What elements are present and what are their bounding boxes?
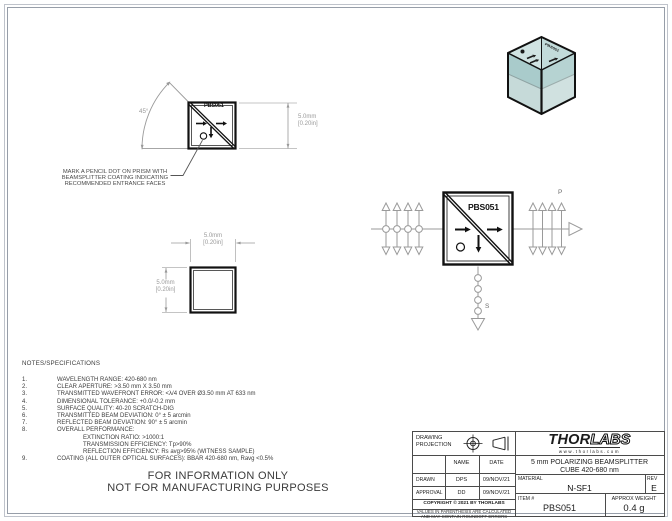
engineering-drawing-page: { "views": { "marking_view": { "cube_lab… [0,0,672,521]
note-item: 7.REFLECTED BEAM DEVIATION: 90° ± 5 arcm… [22,420,352,427]
cone-symbol-icon [493,437,508,451]
p-polarization-label: P [558,189,562,196]
approx-weight-label: APPROX WEIGHT [605,496,664,502]
note-item: 3.TRANSMITTED WAVEFRONT ERROR: <λ/4 OVER… [22,391,352,398]
marking-view-height-dim: 5.0mm [0.20in] [298,114,336,129]
beam-diagram-linework [371,192,582,330]
rev-label: REV [647,476,657,482]
logo-labs: LABS [590,432,630,448]
copyright-notice: COPYRIGHT © 2021 BY THORLABS [413,501,515,506]
note-subitem: EXTINCTION RATIO: >1000:1 [22,435,352,442]
item-number-label: ITEM # [518,496,534,502]
thorlabs-url: www.thorlabs.com [559,447,620,454]
approval-name: DD [445,490,479,496]
front-view-height-dim: 5.0mm [0.20in] [149,280,182,295]
note-item: 5.SURFACE QUALITY: 40-20 SCRATCH-DIG [22,406,352,413]
note-item: 2.CLEAR APERTURE: >3.50 mm X 3.50 mm [22,384,352,391]
pencil-dot-mark [521,50,525,54]
logo-thor: THOR [548,432,590,448]
drawn-name: DPS [445,477,479,483]
notes-list: 1.WAVELENGTH RANGE: 420-680 nm 2.CLEAR A… [22,377,352,463]
notes-heading: NOTES/SPECIFICATIONS [22,360,100,367]
approx-weight-value: 0.4 g [605,503,664,514]
approval-row-label: APPROVAL [416,490,443,496]
parenthesis-note: VALUES IN PARENTHESIS ARE CALCULATED AND… [413,510,515,520]
material-value: N-SF1 [515,483,644,493]
drawn-date: 09/NOV/21 [479,477,515,483]
title-block: DRAWING PROJECTION NAME DATE DRAWN DPS 0… [412,431,665,517]
pencil-dot-mark [457,243,465,251]
note-item: 1.WAVELENGTH RANGE: 420-680 nm [22,377,352,384]
drawn-row-label: DRAWN [416,477,435,483]
material-label: MATERIAL [518,476,543,482]
s-output-beam [472,267,485,331]
projection-symbols [460,434,514,453]
front-view-linework [162,239,255,313]
transmitted-beam-arrowhead [569,223,582,236]
note-subitem: TRANSMISSION EFFICIENCY: Tp>90% [22,442,352,449]
iso-cube [508,37,575,114]
name-column-header: NAME [445,460,479,466]
drawing-title: 5 mm POLARIZING BEAMSPLITTER CUBE 420-68… [515,459,664,475]
date-column-header: DATE [479,460,515,466]
front-view-width-dim: 5.0mm [0.20in] [196,233,230,248]
angle-dimension-label: 45° [139,108,148,115]
note-item: 6.TRANSMITTED BEAM DEVIATION: 0° ± 5 arc… [22,413,352,420]
note-item: 8.OVERALL PERFORMANCE: [22,427,352,434]
note-item: 4.DIMENSIONAL TOLERANCE: +0.0/-0.2 mm [22,399,352,406]
s-polarization-label: S [485,303,489,310]
marking-view-linework [141,82,297,176]
marking-view-cube-label: PBS051 [204,103,224,109]
note-item: 9.COATING (ALL OUTER OPTICAL SURFACES): … [22,456,352,463]
rev-value: E [645,483,664,493]
thorlabs-logo: THORLABS www.thorlabs.com [515,432,664,454]
pencil-dot-note: MARK A PENCIL DOT ON PRISM WITH BEAMSPLI… [58,169,172,188]
note-subitem: REFLECTION EFFICIENCY: Rs avg>95% (WITNE… [22,449,352,456]
item-number-value: PBS051 [515,503,604,513]
information-only-disclaimer: FOR INFORMATION ONLY NOT FOR MANUFACTURI… [96,471,340,494]
beam-diagram-cube-label: PBS051 [468,202,499,212]
approval-date: 09/NOV/21 [479,490,515,496]
drawing-projection-label: DRAWING PROJECTION [416,435,462,448]
pencil-dot-mark [200,133,206,139]
